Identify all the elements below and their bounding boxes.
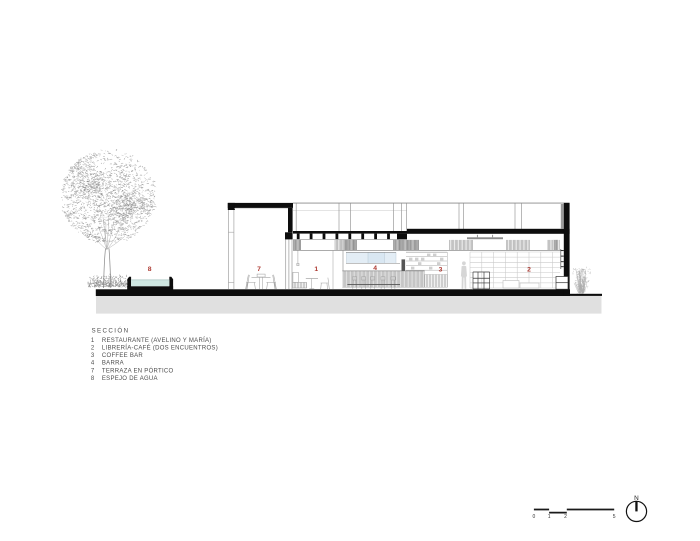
- svg-text:4: 4: [91, 361, 95, 367]
- svg-text:4: 4: [373, 265, 377, 272]
- svg-text:N: N: [634, 495, 639, 502]
- svg-text:8: 8: [91, 376, 95, 382]
- svg-text:COFFEE BAR: COFFEE BAR: [102, 353, 144, 359]
- svg-text:ESPEJO DE AGUA: ESPEJO DE AGUA: [102, 376, 158, 382]
- svg-text:3: 3: [91, 353, 95, 359]
- svg-text:8: 8: [148, 266, 152, 273]
- svg-text:3: 3: [439, 266, 443, 273]
- svg-text:1: 1: [548, 514, 551, 520]
- svg-text:LIBRERÍA-CAFÉ (DOS ENCUENTROS): LIBRERÍA-CAFÉ (DOS ENCUENTROS): [102, 344, 218, 351]
- svg-text:RESTAURANTE (AVELINO Y MARÍA): RESTAURANTE (AVELINO Y MARÍA): [102, 337, 212, 344]
- svg-text:1: 1: [91, 338, 95, 344]
- svg-text:TERRAZA EN PÓRTICO: TERRAZA EN PÓRTICO: [102, 367, 174, 374]
- svg-text:7: 7: [257, 266, 261, 273]
- svg-text:SECCIÓN: SECCIÓN: [92, 327, 130, 334]
- svg-text:2: 2: [91, 345, 95, 351]
- svg-text:BARRA: BARRA: [102, 361, 124, 367]
- svg-text:2: 2: [564, 514, 567, 520]
- svg-text:2: 2: [527, 267, 531, 274]
- svg-text:5: 5: [613, 514, 616, 520]
- svg-text:1: 1: [314, 266, 318, 273]
- svg-text:7: 7: [91, 368, 95, 374]
- svg-text:0: 0: [533, 514, 536, 520]
